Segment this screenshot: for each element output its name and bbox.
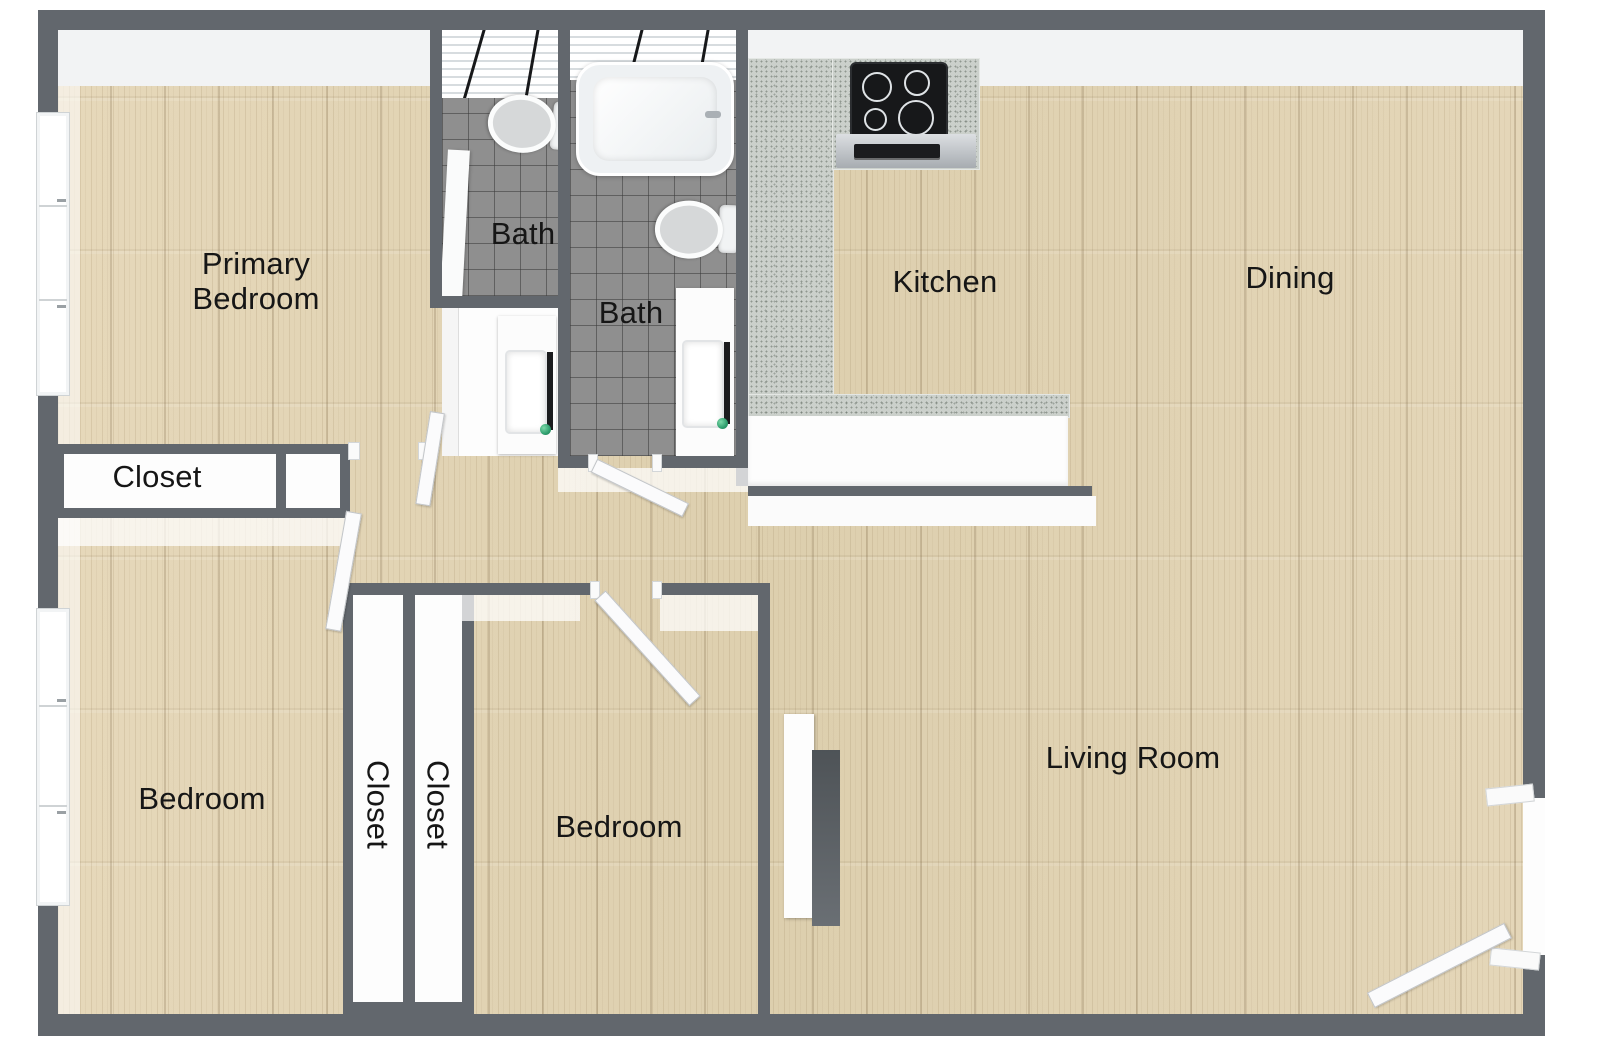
toilet	[660, 200, 740, 257]
window-mullion	[39, 299, 67, 301]
alcove-wall-face	[442, 308, 459, 456]
wall-bath-kitchen	[736, 30, 748, 486]
room-label-bath-large: Bath	[571, 295, 691, 330]
vanity-sink	[498, 316, 556, 454]
room-label-closet-left: Closet	[361, 705, 396, 905]
bathtub-faucet	[705, 111, 721, 118]
tile-seam-icon	[523, 30, 540, 98]
wall-bath-large-bottom-left	[558, 456, 592, 468]
bedroom-middle-wall-face-left	[462, 595, 580, 621]
cooktop	[850, 62, 948, 144]
room-label-kitchen: Kitchen	[845, 264, 1045, 299]
sink-basin	[682, 340, 724, 428]
toilet-seat	[654, 199, 724, 259]
oven-handle	[854, 144, 940, 160]
sink-basin	[505, 350, 547, 434]
tile-seam-icon	[461, 30, 486, 98]
entry-doorway	[1523, 798, 1545, 955]
floor-plan: Primary Bedroom Bath Bath Kitchen Dining…	[0, 0, 1600, 1063]
kitchen-counter-left	[748, 58, 834, 404]
window-mullion	[39, 205, 67, 207]
window-mullion	[39, 805, 67, 807]
room-label-living-room: Living Room	[1033, 740, 1233, 775]
faucet-knob	[540, 424, 551, 435]
wall-bedroom-middle-right	[758, 583, 770, 1014]
room-label-primary-bedroom: Primary Bedroom	[181, 246, 331, 316]
primary-bedroom-window	[36, 112, 70, 396]
wall-primary-bath	[430, 30, 442, 304]
burner-icon	[904, 70, 930, 96]
wall-bedroom-middle-top-left	[462, 583, 592, 595]
window-handle	[57, 305, 66, 308]
bathtub	[576, 62, 734, 176]
room-label-bath-small: Bath	[463, 216, 583, 251]
window-handle	[57, 199, 66, 202]
kitchen-counter-bottom-top	[748, 394, 1070, 418]
faucet	[547, 352, 553, 430]
door-jamb	[652, 581, 662, 599]
room-label-hall-closet: Closet	[57, 459, 257, 494]
hall-closet-compartment	[286, 454, 340, 508]
wall-bath-large-bottom-right	[660, 456, 748, 468]
wall-bath-small-bottom	[430, 296, 570, 308]
hall-closet-face	[58, 518, 348, 546]
bathtub-basin	[593, 77, 717, 161]
burner-icon	[864, 108, 887, 131]
burner-icon	[898, 100, 934, 136]
wall-bedroom-middle-top-right	[660, 583, 758, 595]
room-label-dining: Dining	[1190, 260, 1390, 295]
kitchen-counter-bottom-front	[748, 416, 1068, 486]
room-label-closet-right: Closet	[421, 705, 456, 905]
window-mullion	[39, 705, 67, 707]
fireplace-panel	[812, 750, 840, 926]
window-handle	[57, 699, 66, 702]
exterior-wall-right-upper	[1523, 10, 1545, 798]
door-jamb	[348, 442, 360, 460]
faucet	[724, 342, 730, 424]
exterior-wall-bottom	[38, 1014, 1523, 1036]
bedroom-left-window	[36, 608, 70, 906]
exterior-wall-top	[38, 10, 1545, 30]
bath-small-wall-tiles	[442, 30, 558, 98]
room-label-bedroom-left: Bedroom	[102, 781, 302, 816]
burner-icon	[862, 72, 892, 102]
bedroom-middle-wall-face-right	[660, 595, 758, 631]
door-jamb	[652, 454, 662, 472]
kitchen-half-wall	[748, 486, 1092, 496]
fireplace-surround	[784, 714, 814, 918]
kitchen-half-wall-face	[748, 496, 1096, 526]
faucet-knob	[717, 418, 728, 429]
window-handle	[57, 811, 66, 814]
room-label-bedroom-middle: Bedroom	[519, 809, 719, 844]
oven-front	[836, 134, 976, 168]
